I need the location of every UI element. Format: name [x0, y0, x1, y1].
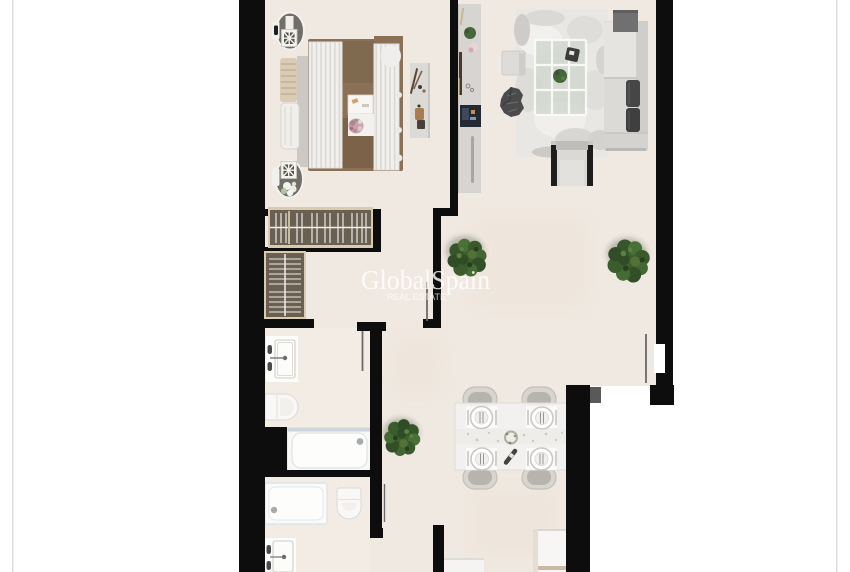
- svg-text:REAL ESTATE: REAL ESTATE: [387, 292, 446, 302]
- svg-text:GlobalSpain: GlobalSpain: [361, 265, 490, 295]
